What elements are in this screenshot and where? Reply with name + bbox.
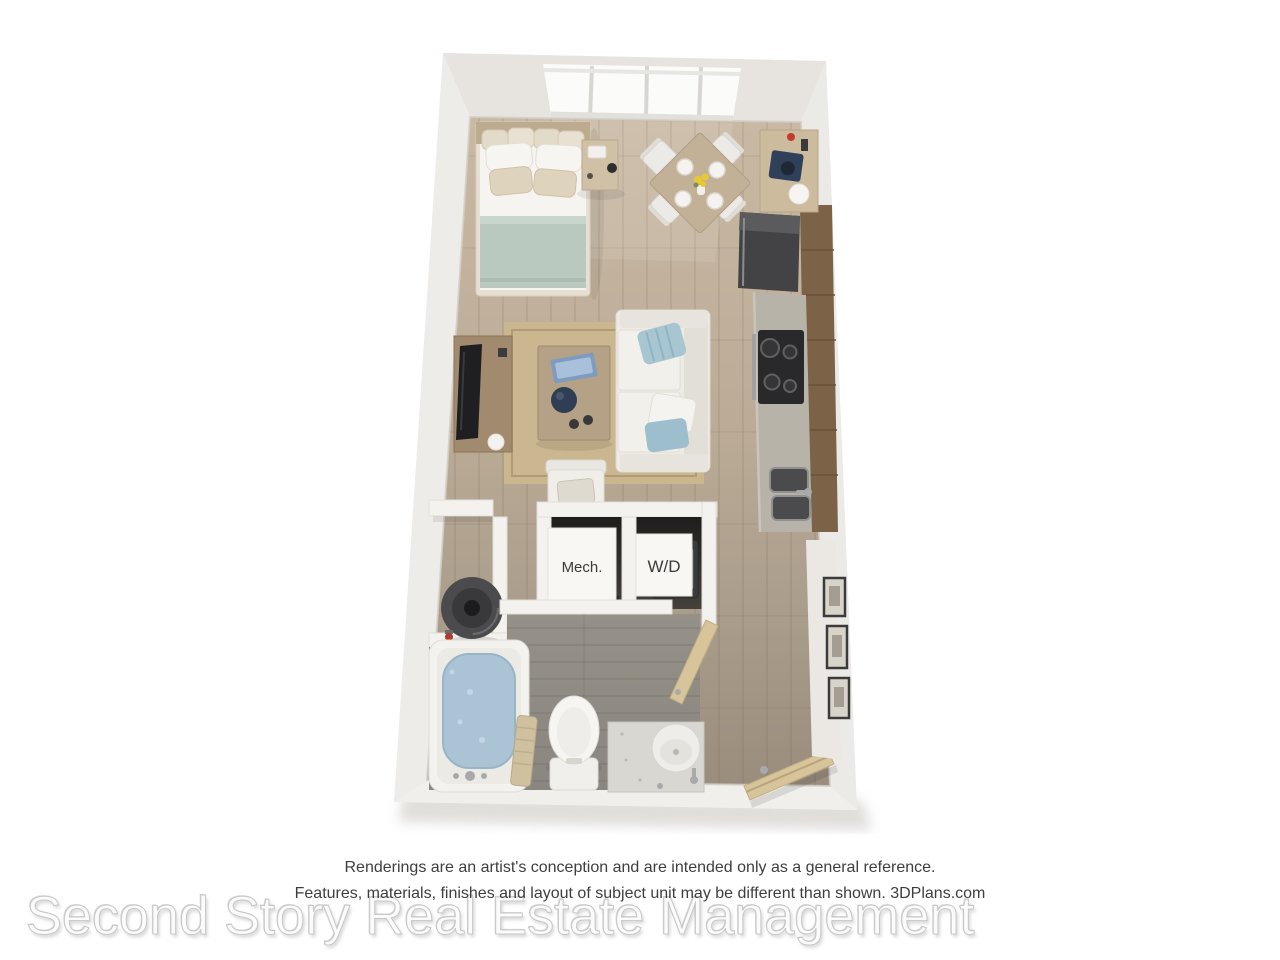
plate [675,191,691,207]
toilet [546,696,602,790]
tub-faucet [465,771,475,781]
lamp [607,163,617,173]
mech-label: Mech. [562,559,603,576]
floor-plan-page: Mech. W/D [0,0,1280,960]
coffee-table [536,346,612,451]
door-knob [675,689,681,695]
floor-plan-rendering: Mech. W/D [0,0,1280,960]
vase [551,387,577,413]
plate [709,162,725,178]
throw-pillow [644,417,690,453]
tv [456,344,482,440]
vanity [608,722,704,792]
nightstand [577,140,625,200]
sofa [616,310,710,472]
plate [707,193,723,209]
oven-handle [752,334,756,400]
disclaimer-line-1: Renderings are an artist's conception an… [0,858,1280,878]
plate [677,159,693,175]
door-knob [760,766,768,774]
disclaimer-line-2: Features, materials, finishes and layout… [0,884,1280,904]
wd-label: W/D [647,557,680,576]
bed-blanket [480,216,586,288]
tv-console [454,336,512,452]
cooktop [752,330,804,404]
